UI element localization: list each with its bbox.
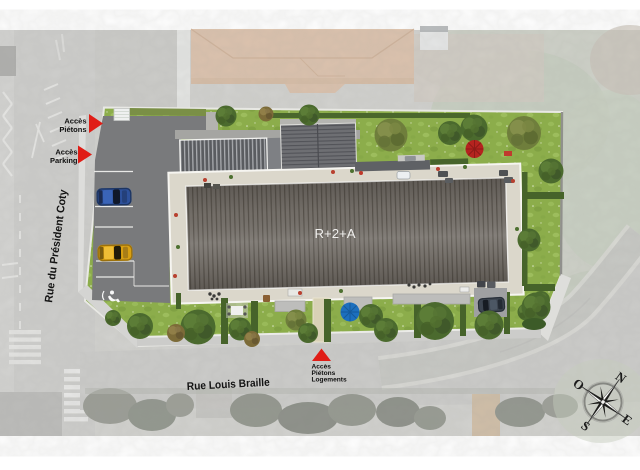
svg-text:Logements: Logements bbox=[312, 377, 348, 384]
svg-text:R+2+A: R+2+A bbox=[315, 226, 356, 241]
svg-text:Piétons: Piétons bbox=[59, 125, 86, 134]
svg-text:Parking: Parking bbox=[50, 156, 78, 165]
